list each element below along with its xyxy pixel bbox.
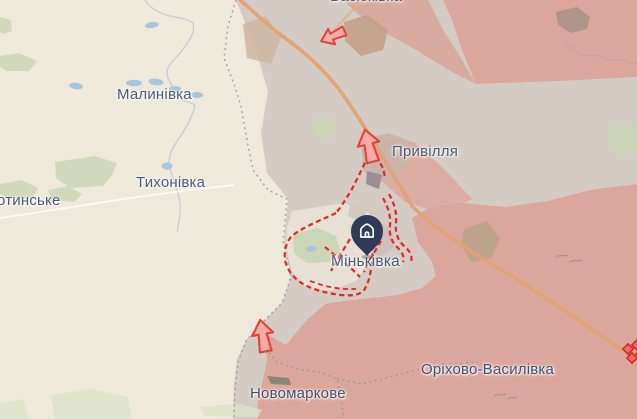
town-label-vasiukivka: Васюківка (330, 0, 402, 5)
town-label-otynske: отинське (0, 192, 61, 209)
map-art-layer (0, 0, 637, 419)
town-label-tykhonivka: Тихонівка (136, 174, 205, 191)
town-label-novomarkove: Новомаркове (250, 385, 346, 402)
town-label-minkivka: Міньківка (331, 253, 400, 271)
map-canvas[interactable]: Васюківка Малинівка Тихонівка отинське П… (0, 0, 637, 419)
town-label-malynivka: Малинівка (117, 86, 192, 103)
town-label-pryvillia: Привілля (392, 143, 458, 160)
occupied-zone-north (443, 0, 637, 84)
town-label-orikhovo-vasylivka: Оріхово-Василівка (421, 361, 554, 378)
